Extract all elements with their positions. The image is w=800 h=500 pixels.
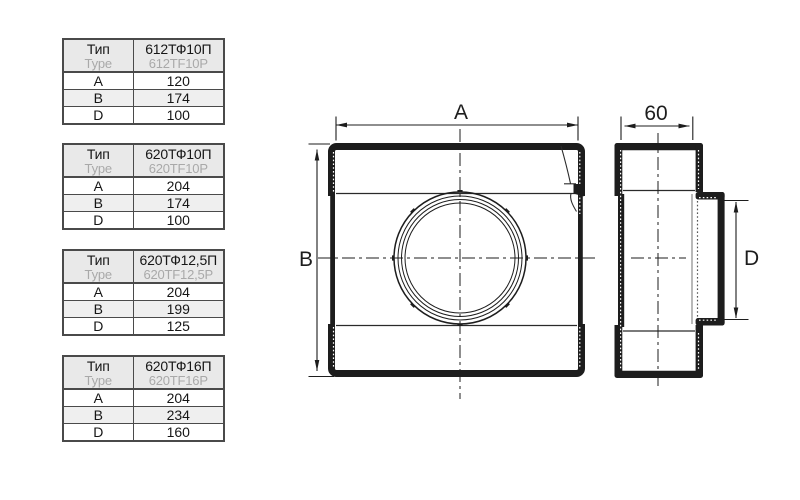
table-row: A 120 — [63, 72, 224, 90]
param-value: 100 — [133, 107, 224, 125]
table-row: D 100 — [63, 212, 224, 230]
side-bottomright-bar — [696, 325, 703, 376]
table-row: D 125 — [63, 318, 224, 336]
spec-table-612tf10p: Тип Type 612ТФ10П 612TF10P A 120 B 174 D… — [62, 38, 225, 125]
side-top-bar — [615, 143, 704, 150]
type-label-ru: Тип — [64, 42, 133, 57]
table-row: B 174 — [63, 90, 224, 107]
param-value: 234 — [133, 407, 224, 424]
spigot-bottom-bar — [696, 318, 725, 326]
param-name: D — [63, 212, 133, 230]
param-name: A — [63, 72, 133, 90]
table-row: B 174 — [63, 195, 224, 212]
dim-label-b: B — [299, 248, 313, 271]
dim-label-a: A — [454, 101, 468, 124]
table-header-row: Тип Type 620ТФ12,5П 620TF12,5P — [63, 250, 224, 283]
front-right-step — [583, 196, 586, 324]
model-cell: 620ТФ16П 620TF16P — [133, 356, 224, 389]
param-name: A — [63, 177, 133, 195]
model-ru: 612ТФ10П — [134, 42, 224, 57]
model-en: 612TF10P — [134, 57, 224, 70]
model-ru: 620ТФ16П — [134, 359, 224, 374]
type-label-ru: Тип — [64, 359, 133, 374]
spec-table-620tf10p: Тип Type 620ТФ10П 620TF10P A 204 B 174 D… — [62, 143, 225, 230]
param-name: D — [63, 107, 133, 125]
dim-label-depth: 60 — [644, 102, 667, 125]
type-header-cell: Тип Type — [63, 356, 133, 389]
model-cell: 620ТФ10П 620TF10P — [133, 144, 224, 177]
side-topright-bar — [696, 145, 703, 192]
table-row: D 100 — [63, 107, 224, 125]
side-view: 60 D — [615, 102, 760, 387]
type-header-cell: Тип Type — [63, 250, 133, 283]
spec-table-620tf16p: Тип Type 620ТФ16П 620TF16P A 204 B 234 D… — [62, 355, 225, 442]
type-label-ru: Тип — [64, 147, 133, 162]
table-row: A 204 — [63, 389, 224, 407]
param-value: 120 — [133, 72, 224, 90]
spec-table-620tf125p: Тип Type 620ТФ12,5П 620TF12,5P A 204 B 1… — [62, 249, 225, 336]
spigot-lug — [457, 190, 462, 192]
param-value: 100 — [133, 212, 224, 230]
table-row: B 234 — [63, 407, 224, 424]
type-header-cell: Тип Type — [63, 39, 133, 72]
table-header-row: Тип Type 620ТФ10П 620TF10P — [63, 144, 224, 177]
param-value: 199 — [133, 301, 224, 318]
front-body-outline — [332, 147, 582, 374]
type-header-cell: Тип Type — [63, 144, 133, 177]
dimension-a: A — [336, 101, 578, 141]
type-label-en: Type — [64, 374, 133, 387]
side-bottom-bar — [615, 371, 704, 378]
table-row: A 204 — [63, 283, 224, 301]
table-header-row: Тип Type 612ТФ10П 612TF10P — [63, 39, 224, 72]
param-value: 125 — [133, 318, 224, 336]
model-en: 620TF12,5P — [134, 268, 224, 281]
param-name: B — [63, 407, 133, 424]
type-label-ru: Тип — [64, 253, 133, 268]
type-label-en: Type — [64, 57, 133, 70]
front-view: A B — [299, 101, 598, 399]
param-name: B — [63, 195, 133, 212]
model-cell: 620ТФ12,5П 620TF12,5P — [133, 250, 224, 283]
table-row: B 199 — [63, 301, 224, 318]
dimension-d: D — [724, 201, 759, 320]
model-en: 620TF10P — [134, 162, 224, 175]
dim-label-d: D — [744, 247, 759, 270]
param-value: 204 — [133, 389, 224, 407]
param-value: 204 — [133, 177, 224, 195]
param-value: 160 — [133, 424, 224, 442]
param-name: A — [63, 283, 133, 301]
model-cell: 612ТФ10П 612TF10P — [133, 39, 224, 72]
front-left-step — [327, 196, 330, 324]
param-name: A — [63, 389, 133, 407]
table-row: A 204 — [63, 177, 224, 195]
dimension-60: 60 — [621, 102, 693, 140]
table-header-row: Тип Type 620ТФ16П 620TF16P — [63, 356, 224, 389]
model-en: 620TF16P — [134, 374, 224, 387]
table-row: D 160 — [63, 424, 224, 442]
spigot-right-bar — [718, 192, 725, 326]
param-name: B — [63, 90, 133, 107]
type-label-en: Type — [64, 268, 133, 281]
param-name: B — [63, 301, 133, 318]
param-value: 204 — [133, 283, 224, 301]
param-value: 174 — [133, 90, 224, 107]
param-name: D — [63, 424, 133, 442]
model-ru: 620ТФ12,5П — [134, 253, 224, 268]
param-name: D — [63, 318, 133, 336]
model-ru: 620ТФ10П — [134, 147, 224, 162]
type-label-en: Type — [64, 162, 133, 175]
param-value: 174 — [133, 195, 224, 212]
